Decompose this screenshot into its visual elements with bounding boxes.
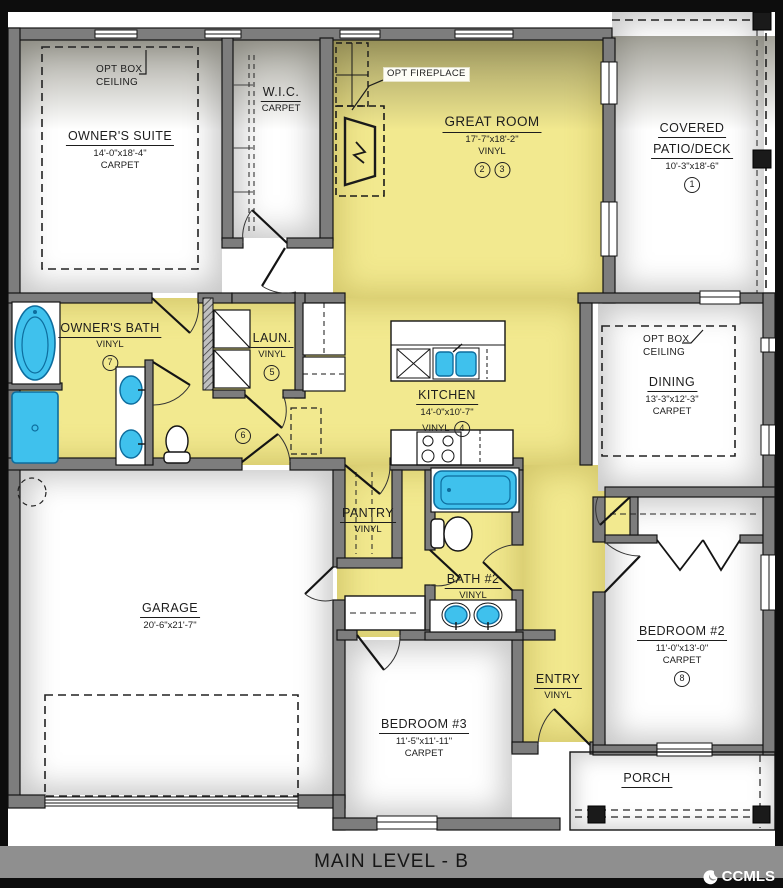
owners-shower <box>12 392 58 463</box>
ccmls-watermark: CCMLS <box>703 868 775 885</box>
room-label-pantry: PANTRY VINYL <box>340 503 396 536</box>
ccmls-wave-icon <box>703 869 719 885</box>
room-label-dining: DINING 13'-3"x12'-3" CARPET <box>645 372 698 418</box>
plumbing-wall-hatch <box>203 298 213 390</box>
room-label-great-room: GREAT ROOM 17'-7"x18'-2" VINYL 23 <box>442 112 541 179</box>
frame-left <box>0 0 8 846</box>
marker-5: 5 <box>264 365 280 381</box>
room-label-bedroom3: BEDROOM #3 11'-5"x11'-11" CARPET <box>379 714 469 760</box>
fireplace <box>336 43 384 196</box>
room-label-owners-suite: OWNER'S SUITE 14'-0"x18'-4" CARPET <box>66 126 174 172</box>
kitchen-sink-1 <box>436 352 453 376</box>
marker-3: 3 <box>494 162 510 178</box>
mud-cabinets <box>303 303 345 391</box>
marker-1: 1 <box>684 177 700 193</box>
annotation-opt-fireplace: OPT FIREPLACE <box>384 68 469 81</box>
title-bar: MAIN LEVEL - B <box>0 846 783 878</box>
annotation-opt-box-ceiling-dining: OPT BOX CEILING <box>643 334 689 359</box>
room-label-covered-patio: COVERED PATIO/DECK 10'-3"x18'-6" 1 <box>651 118 733 194</box>
bath2-toilet <box>444 517 472 551</box>
room-label-kitchen: KITCHEN 14'-0"x10'-7" VINYL 4 <box>416 385 478 437</box>
room-label-laundry: LAUN. VINYL 5 <box>251 328 294 382</box>
frame-right <box>775 0 783 846</box>
kitchen-sink-2 <box>456 352 476 376</box>
marker-7: 7 <box>102 355 118 371</box>
wic-shelves <box>233 85 253 192</box>
marker-8: 8 <box>674 671 690 687</box>
bedroom3-closet <box>345 596 425 630</box>
marker-2: 2 <box>474 162 490 178</box>
room-label-owners-bath: OWNER'S BATH VINYL 7 <box>58 318 161 372</box>
annotation-opt-box-ceiling-suite: OPT BOX CEILING <box>96 64 142 89</box>
frame-top <box>0 0 783 12</box>
closet-bifold-doors <box>657 540 740 570</box>
bath2-fixtures <box>430 468 519 632</box>
frame-bottom <box>0 878 783 888</box>
bath2-vanity <box>430 600 516 632</box>
marker-6: 6 <box>235 428 251 444</box>
room-label-entry: ENTRY VINYL <box>534 669 582 702</box>
plan-title: MAIN LEVEL - B <box>314 851 469 873</box>
bath2-sink-2 <box>477 606 499 624</box>
room-label-porch: PORCH <box>621 768 672 789</box>
laundry-fixtures <box>214 310 250 388</box>
ccmls-text: CCMLS <box>722 868 775 885</box>
room-label-garage: GARAGE 20'-6"x21'-7" <box>140 598 200 632</box>
hall-marker: 6 <box>233 424 253 445</box>
room-label-bath2: BATH #2 VINYL <box>445 569 502 602</box>
room-label-bedroom2: BEDROOM #2 11'-0"x13'-0" CARPET 8 <box>637 621 727 688</box>
marker-4: 4 <box>454 421 470 437</box>
bath2-sink-1 <box>445 606 467 624</box>
floorplan-page: OWNER'S SUITE 14'-0"x18'-4" CARPET OPT B… <box>0 0 783 888</box>
room-name: OWNER'S SUITE <box>66 128 174 146</box>
room-label-wic: W.I.C. CARPET <box>261 82 301 115</box>
